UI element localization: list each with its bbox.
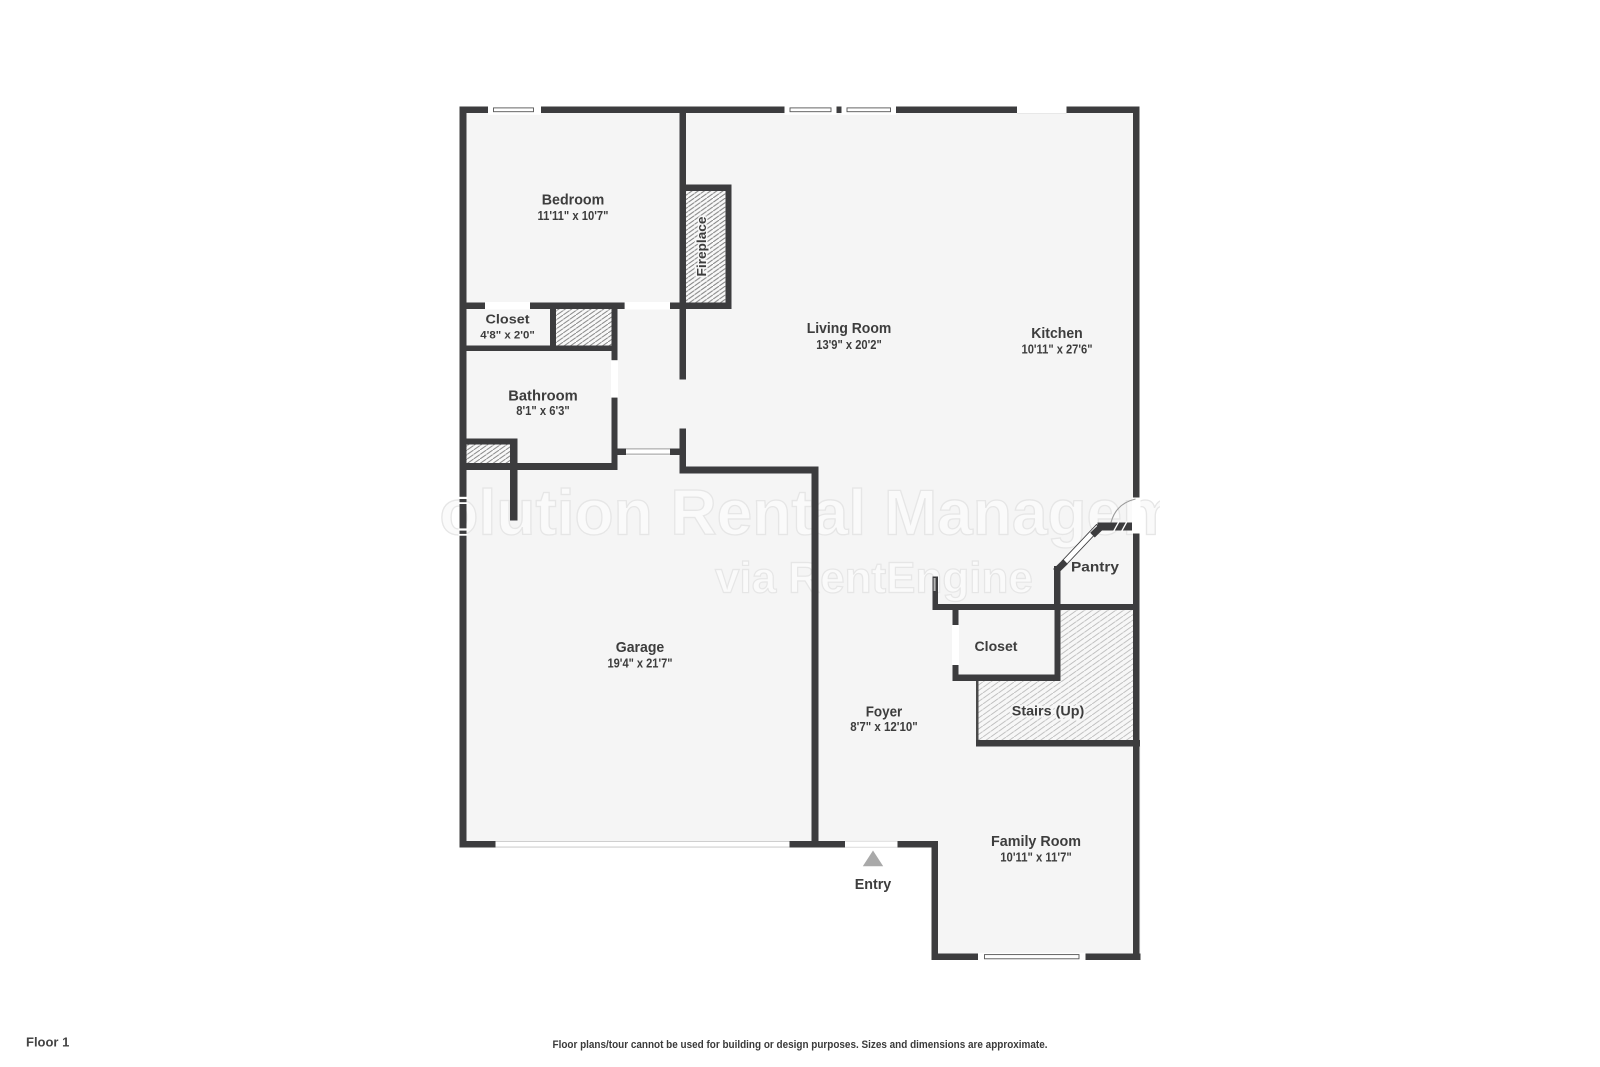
svg-text:Kitchen: Kitchen — [1031, 325, 1083, 342]
svg-text:13'9" x 20'2": 13'9" x 20'2" — [816, 338, 882, 352]
svg-text:Pantry: Pantry — [1071, 559, 1119, 575]
svg-text:4'8" x 2'0": 4'8" x 2'0" — [480, 330, 535, 342]
svg-text:10'11" x 11'7": 10'11" x 11'7" — [1000, 851, 1072, 865]
svg-text:Closet: Closet — [975, 638, 1018, 654]
svg-text:Family Room: Family Room — [991, 833, 1081, 850]
svg-text:Living Room: Living Room — [807, 320, 892, 337]
svg-text:10'11" x 27'6": 10'11" x 27'6" — [1022, 343, 1093, 357]
svg-text:Bedroom: Bedroom — [542, 192, 605, 209]
svg-text:Closet: Closet — [486, 312, 531, 327]
svg-text:Floor 1: Floor 1 — [26, 1035, 69, 1050]
svg-text:Bathroom: Bathroom — [508, 388, 578, 405]
svg-text:Entry: Entry — [855, 876, 892, 893]
svg-text:19'4" x 21'7": 19'4" x 21'7" — [608, 657, 673, 671]
svg-text:Fireplace: Fireplace — [694, 217, 709, 277]
svg-text:8'7" x 12'10": 8'7" x 12'10" — [850, 720, 918, 734]
svg-text:Floor plans/tour cannot be use: Floor plans/tour cannot be used for buil… — [553, 1039, 1048, 1051]
svg-text:Garage: Garage — [616, 639, 665, 656]
svg-text:8'1" x 6'3": 8'1" x 6'3" — [516, 404, 570, 418]
svg-text:via RentEngine: via RentEngine — [715, 554, 1033, 603]
svg-text:11'11" x 10'7": 11'11" x 10'7" — [538, 209, 609, 223]
svg-text:Stairs (Up): Stairs (Up) — [1012, 704, 1085, 719]
svg-text:Foyer: Foyer — [866, 704, 903, 721]
